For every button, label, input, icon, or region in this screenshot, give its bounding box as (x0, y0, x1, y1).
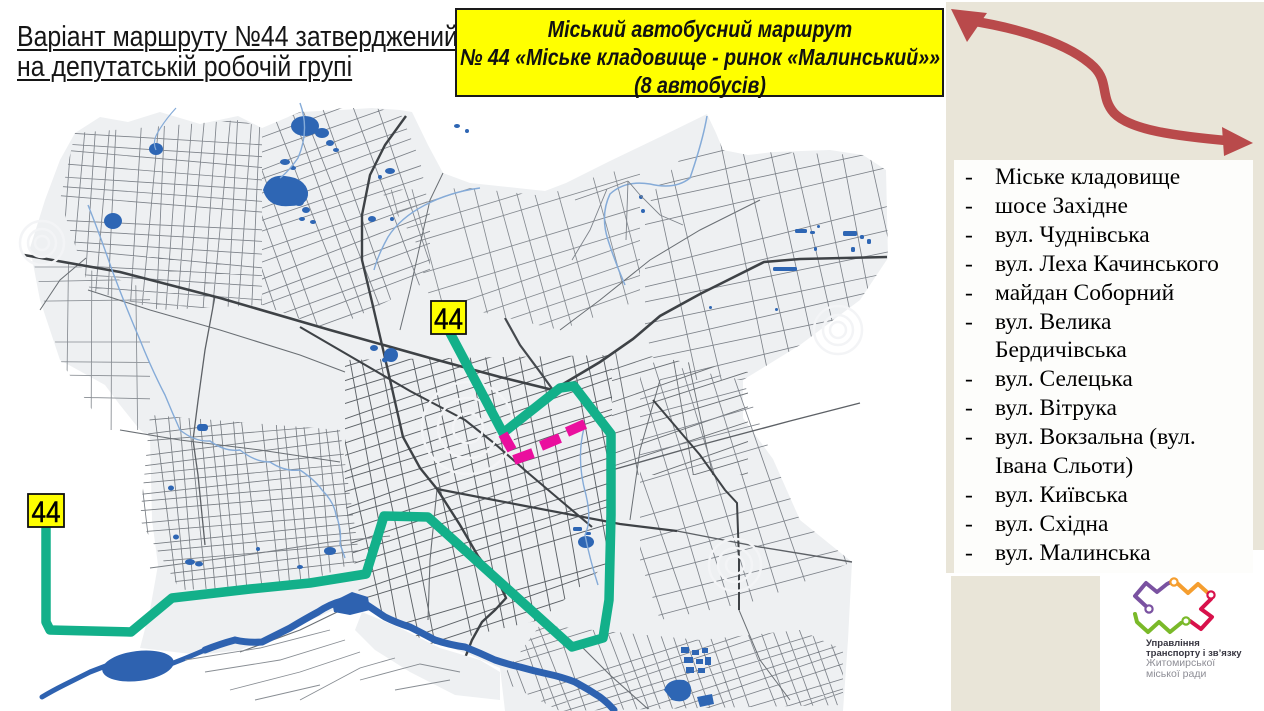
svg-text:44: 44 (32, 496, 61, 529)
svg-text:44: 44 (434, 303, 463, 336)
